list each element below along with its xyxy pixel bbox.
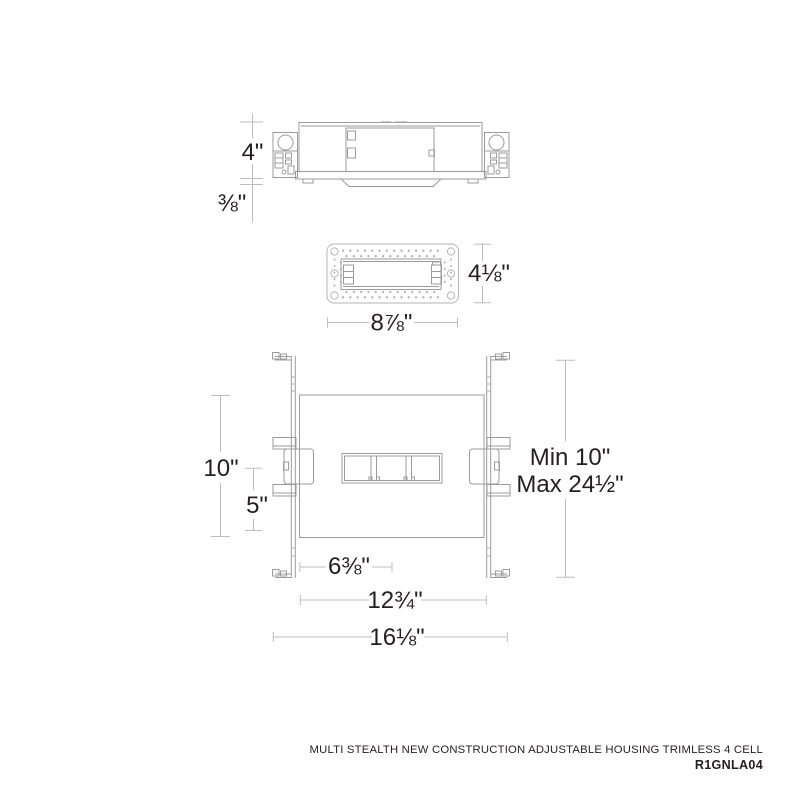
dim-label-housing-width: 12¾" [367, 587, 422, 614]
dim-label-side-height: 4" [242, 139, 264, 166]
dim-label-trim-lip: ⅜" [218, 190, 247, 217]
bar-bracket-right [470, 438, 511, 497]
side-view-housing [273, 122, 509, 187]
plate-aperture [341, 259, 441, 290]
technical-drawing: 4" ⅜" [0, 0, 800, 800]
spec-sheet: 4" ⅜" [0, 0, 800, 800]
housing-outline [300, 395, 485, 538]
trim-aperture [341, 179, 441, 187]
plate-clip-left [344, 265, 354, 284]
mud-plate-view [327, 244, 459, 303]
plate-clip-right [432, 262, 442, 284]
dim-label-edge-to-center: 6⅜" [328, 553, 370, 580]
dim-label-plate-height: 4⅛" [468, 260, 510, 287]
dim-label-hanger-max: Max 24½" [516, 471, 623, 498]
junction-box-right [485, 133, 510, 178]
dim-label-plate-width: 8⅞" [371, 310, 413, 337]
knockout-circle [278, 135, 293, 150]
dim-label-center-to-edge: 5" [246, 492, 268, 519]
dim-label-overall-width: 16⅛" [369, 624, 424, 651]
dim-label-housing-depth: 10" [203, 455, 238, 482]
junction-box-left [273, 133, 298, 178]
flange [296, 172, 487, 180]
dim-label-hanger-min: Min 10" [530, 444, 611, 471]
product-model-number: R1GNLA04 [695, 758, 763, 772]
knockout-circle [489, 135, 504, 150]
hanger-bar-right [487, 353, 510, 579]
bar-bracket-left [273, 438, 314, 497]
plate-outline [327, 244, 459, 303]
plan-view [273, 353, 511, 579]
product-title: MULTI STEALTH NEW CONSTRUCTION ADJUSTABL… [310, 744, 763, 756]
driver-box [342, 454, 442, 484]
